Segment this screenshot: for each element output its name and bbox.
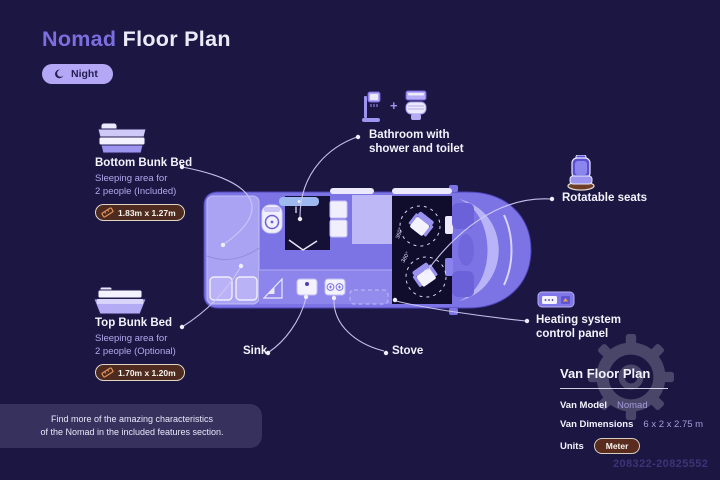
pillow — [210, 277, 232, 300]
nomad-floor-plan-page: 360° 360° — [0, 0, 720, 480]
heating-callout: Heating system control panel — [536, 314, 621, 341]
van-dimensions-label: Van Dimensions — [560, 419, 633, 430]
bathroom-label-line1: Bathroom with — [369, 129, 464, 143]
ruler-icon — [101, 367, 114, 378]
top-bunk-desc-line2: 2 people (Optional) — [95, 346, 185, 359]
plus-icon: + — [390, 98, 398, 113]
bathroom-callout: Bathroom with shower and toilet — [369, 129, 464, 156]
top-bunk-callout: Top Bunk Bed Sleeping area for 2 people … — [95, 316, 185, 383]
shower-icon — [360, 90, 384, 129]
units-label: Units — [560, 441, 584, 452]
night-mode-label: Night — [71, 68, 98, 80]
rotatable-seat-icon — [564, 155, 598, 197]
bottom-bunk-dimension-badge: 1.83m x 1.27m — [95, 204, 185, 221]
bathroom-label-line2: shower and toilet — [369, 143, 464, 157]
lounge-floor — [392, 196, 452, 304]
van-model-row: Van Model Nomad — [560, 400, 712, 411]
cabinet — [330, 201, 347, 218]
stove-label: Stove — [392, 345, 423, 359]
notice-line2: of the Nomad in the included features se… — [40, 426, 223, 439]
notice-line1: Find more of the amazing characteristics — [51, 413, 213, 426]
van-dimensions-value: 6 x 2 x 2.75 m — [643, 419, 703, 430]
cabinet — [330, 220, 347, 237]
van-model-label: Van Model — [560, 400, 607, 411]
heating-label-line2: control panel — [536, 328, 621, 342]
bottom-bunk-title: Bottom Bunk Bed — [95, 156, 192, 170]
cab-seat — [452, 271, 474, 297]
bottom-bunk-callout: Bottom Bunk Bed Sleeping area for 2 peop… — [95, 156, 192, 223]
bottom-bunk-desc-line2: 2 people (Included) — [95, 186, 192, 199]
page-title-rest: Floor Plan — [123, 27, 231, 51]
units-row: Units Meter — [560, 438, 712, 454]
moon-icon — [54, 69, 64, 79]
heating-panel-icon — [537, 291, 575, 314]
entry-step — [350, 290, 388, 304]
pillow — [236, 277, 257, 300]
rotatable-seats-label: Rotatable seats — [562, 192, 647, 206]
watermark-number: 208322-20825552 — [613, 458, 708, 470]
sink-plan — [297, 279, 317, 295]
info-panel-divider — [560, 388, 668, 389]
van-info-panel: Van Floor Plan Van Model Nomad Van Dimen… — [560, 366, 712, 462]
top-bunk-desc-line1: Sleeping area for — [95, 333, 185, 346]
features-notice: Find more of the amazing characteristics… — [0, 404, 262, 448]
ruler-icon — [101, 207, 114, 218]
overhead-cabinet — [352, 195, 392, 244]
heating-label-line1: Heating system — [536, 314, 621, 328]
top-bunk-dimension-badge: 1.70m x 1.20m — [95, 364, 185, 381]
top-bunk-title: Top Bunk Bed — [95, 316, 185, 330]
bottom-bunk-dimensions: 1.83m x 1.27m — [118, 208, 176, 218]
sink-label: Sink — [243, 345, 267, 359]
night-mode-toggle[interactable]: Night — [42, 64, 113, 84]
page-title: Nomad Floor Plan — [42, 27, 231, 52]
info-panel-title: Van Floor Plan — [560, 366, 712, 381]
top-bunk-dimensions: 1.70m x 1.20m — [118, 368, 176, 378]
units-meter-chip[interactable]: Meter — [594, 438, 641, 454]
stove-plan — [325, 279, 345, 295]
toilet-icon — [403, 90, 431, 129]
bottom-bunk-desc-line1: Sleeping area for — [95, 173, 192, 186]
van-model-value: Nomad — [617, 400, 648, 411]
page-title-accent: Nomad — [42, 27, 116, 51]
van-dimensions-row: Van Dimensions 6 x 2 x 2.75 m — [560, 419, 712, 430]
